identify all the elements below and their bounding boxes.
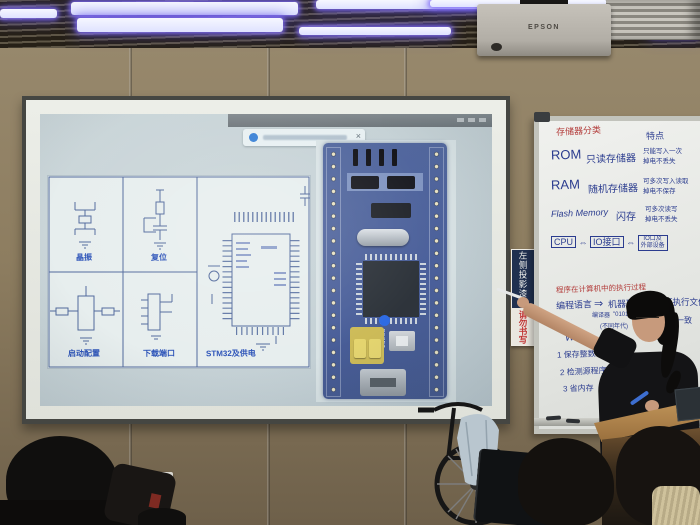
teacher-glasses (636, 317, 659, 323)
pcb-photo-area: RESET (316, 140, 456, 402)
schematic-svg (48, 176, 310, 368)
wb-item1: 1 保存整数 (557, 348, 596, 360)
wb-bus-cpu: CPU (551, 236, 576, 248)
wb-flash-abbr: Flash Memory (551, 207, 608, 219)
boot1-jumper (387, 176, 415, 189)
pin-header-left (326, 147, 341, 397)
whiteboard-corner-bracket (534, 112, 550, 122)
projection-screen: × (22, 96, 510, 424)
schematic-panel: 晶振 复位 启动配置 下载端口 STM32及供电 (48, 176, 310, 368)
wb-bus-dev1: IO口及 (641, 236, 665, 243)
laptop (674, 387, 700, 422)
close-icon (479, 118, 486, 122)
fluorescent-tube (0, 9, 57, 18)
chip-pins-bottom (365, 318, 417, 324)
boot0-jumper (351, 176, 379, 189)
fluorescent-tube (77, 18, 283, 32)
debug-pin (353, 149, 358, 166)
power-led-block (350, 327, 384, 364)
student-head (138, 508, 186, 525)
silk-screen (347, 173, 423, 191)
blue-marker-dot (379, 315, 390, 326)
rtc-crystal (371, 203, 411, 218)
micro-usb-connector (360, 369, 406, 396)
wb-bus-dev2: 外部设备 (641, 243, 665, 250)
chip-pins-left (356, 263, 362, 315)
wb-rom-name: 只读存储器 (586, 149, 636, 166)
schematic-label-download: 下载端口 (143, 348, 175, 359)
wb-flash-note2: 掉电不丢失 (645, 213, 678, 223)
yellow-jumper-cap (369, 339, 381, 358)
wb-bus-arrow1: ⇔ (579, 237, 588, 247)
notification-toast: × (243, 129, 365, 146)
main-crystal (357, 229, 409, 246)
mcu-chip (363, 261, 419, 317)
wb-ram-note2: 掉电不保存 (643, 185, 676, 195)
maximize-icon (468, 118, 475, 122)
fluorescent-tube (71, 2, 298, 15)
pin-header-right (429, 147, 444, 397)
screen-matte: × (26, 100, 506, 419)
yellow-jumper-cap (354, 339, 366, 358)
wb-ram-name: 随机存储器 (588, 179, 638, 196)
wb-bus-arrow2: ⇔ (626, 237, 635, 247)
info-icon (249, 133, 258, 142)
schematic-label-boot: 启动配置 (68, 348, 100, 359)
wb-flow-src: 编程语言 (556, 297, 593, 312)
classroom-photo: EPSON × (0, 0, 700, 525)
stm32-blue-pill-board: RESET (323, 143, 447, 399)
toast-text-blur (263, 135, 347, 140)
wb-rom-note2: 掉电不丢失 (643, 155, 676, 165)
debug-pin (366, 149, 371, 166)
reset-button (389, 331, 415, 351)
debug-pin (392, 149, 397, 166)
schematic-label-reset: 复位 (151, 252, 167, 263)
wb-rom-abbr: ROM (551, 146, 582, 162)
wb-rom-note1: 只能写入一次 (643, 145, 682, 155)
projector-brand-label: EPSON (477, 24, 611, 31)
projector-lens (491, 43, 502, 51)
wb-bus-diagram: CPU ⇔ IO接口 ⇔ IO口及 外部设备 (551, 235, 668, 251)
projector: EPSON (477, 4, 611, 56)
chip-pins-right (420, 263, 426, 315)
wb-bus-io: IO接口 (590, 236, 624, 248)
student-sweater (652, 486, 700, 525)
minimize-icon (457, 118, 464, 122)
wb-flow-arrow1: ⇒ (594, 297, 603, 310)
wb-flash-name: 闪存 (616, 208, 636, 223)
wb-note-compiler: 编译器 (592, 310, 610, 319)
fluorescent-tube (299, 27, 451, 35)
wb-title: 存储器分类 (556, 123, 602, 138)
wb-col-header: 特点 (646, 129, 664, 143)
schematic-label-mcu: STM32及供电 (206, 348, 256, 359)
wb-ram-abbr: RAM (551, 177, 580, 193)
wb-flash-note1: 可多次读写 (645, 203, 678, 213)
air-vent (606, 0, 700, 40)
window-titlebar (228, 114, 492, 127)
schematic-label-crystal: 晶振 (76, 252, 92, 263)
reset-silk-label: RESET (379, 329, 385, 348)
toast-close-icon: × (356, 131, 361, 141)
wb-ram-note1: 可多次写入读取 (643, 175, 689, 185)
projected-content: × (40, 114, 492, 406)
debug-pin (379, 149, 384, 166)
chip-pins-top (365, 254, 417, 260)
